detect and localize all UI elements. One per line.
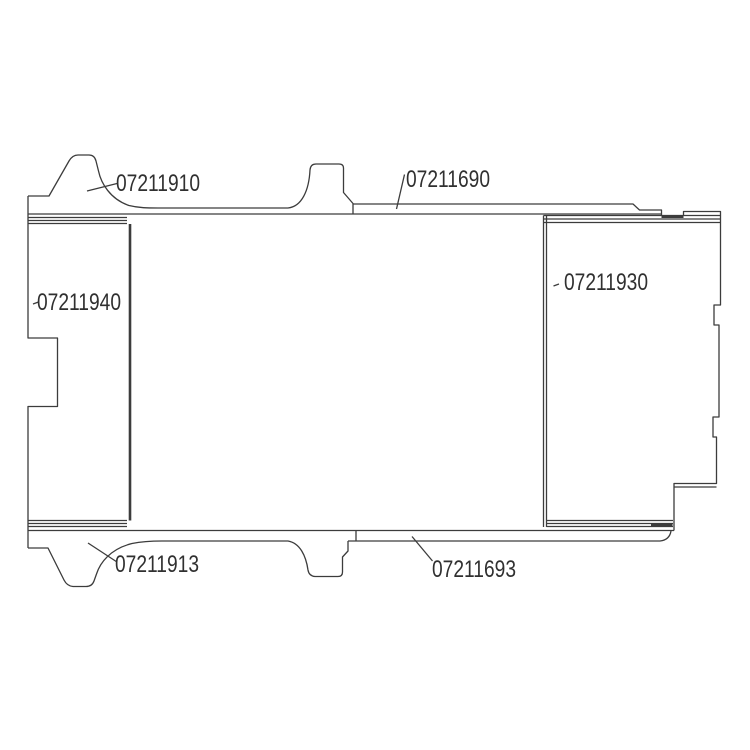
left-panel-bottom-band <box>28 521 127 527</box>
right-panel-left-edge <box>544 216 547 528</box>
leader-stub-right-panel <box>554 284 560 286</box>
part-outline-bottom-strip <box>348 531 671 542</box>
part-number-label-left-panel: 07211940 <box>37 291 121 315</box>
part-number-label-right-panel: 07211930 <box>564 271 648 295</box>
part-number-label-bottom-left: 07211913 <box>115 553 199 577</box>
part-number-label-top-left: 07211910 <box>116 172 200 196</box>
part-number-label-bottom-strip: 07211693 <box>432 558 516 582</box>
drawing-page: 07211910 07211690 07211940 07211930 0721… <box>0 0 750 750</box>
part-number-label-top-strip: 07211690 <box>406 168 490 192</box>
part-outline-right-panel <box>674 212 721 531</box>
right-panel-top-band <box>544 216 721 223</box>
parts-diagram-svg <box>0 0 750 750</box>
leader-line-bottom-strip <box>412 537 433 562</box>
part-outline-left-panel <box>28 196 58 548</box>
left-panel-top-band <box>28 218 127 224</box>
leader-line-top-left <box>87 184 117 192</box>
